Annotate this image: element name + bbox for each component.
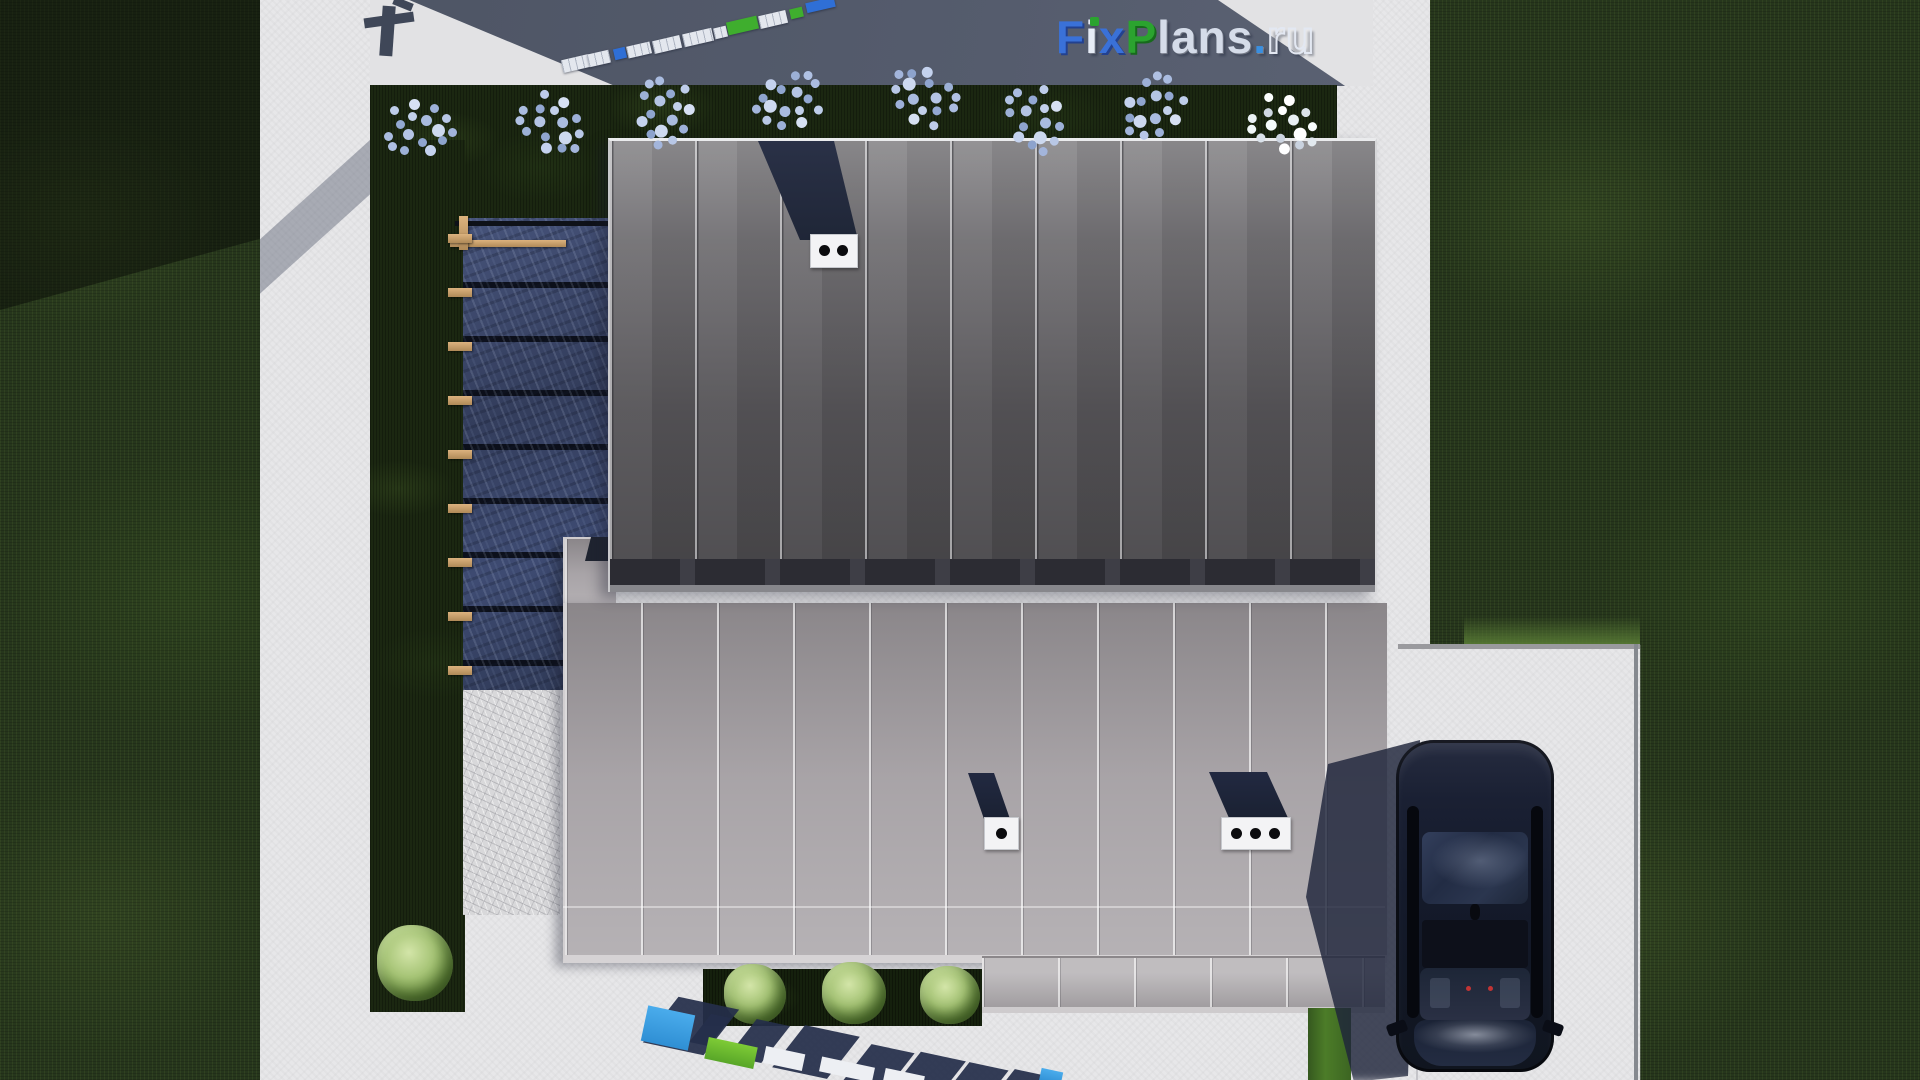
vent-hole — [996, 828, 1007, 839]
chimney-cap — [810, 234, 858, 268]
car-roof — [1422, 920, 1528, 968]
roof-vent-cap — [984, 817, 1019, 850]
garden-bush-left — [377, 925, 453, 1001]
pergola-rafter-tail — [448, 288, 472, 297]
watermark-letter-blue — [1039, 1068, 1063, 1080]
car-dash-light — [1488, 986, 1493, 991]
roof-lower-seam-line — [563, 906, 1385, 908]
vent-hole — [1269, 828, 1280, 839]
front-bush — [822, 962, 886, 1024]
pergola-rafter-tail — [448, 342, 472, 351]
vent-hole — [1231, 828, 1242, 839]
pergola-rafter-tail — [448, 504, 472, 513]
front-bush — [920, 966, 980, 1024]
patio-edge-line-right — [1634, 644, 1638, 1080]
pergola-rafter-tail — [448, 558, 472, 567]
roof-upper — [608, 138, 1377, 592]
logo-letter: P — [1125, 10, 1157, 64]
logo-letter: . — [1253, 10, 1267, 64]
logo-letter: n — [1198, 10, 1227, 64]
patio-edge-line-top — [1398, 644, 1640, 649]
roof-upper-eave-gaps — [610, 559, 1375, 585]
car-seat-glint — [1430, 978, 1450, 1008]
chimney-flue — [837, 245, 848, 256]
aerial-house-render: FixPlans.ru — [0, 0, 1920, 1080]
logo-letter: s — [1227, 10, 1254, 64]
logo-letter: l — [1157, 10, 1171, 64]
car-window-channel — [1407, 806, 1419, 1018]
pergola-rafter-tail — [448, 396, 472, 405]
car-rear-window — [1422, 832, 1528, 904]
car-window-channel — [1531, 806, 1543, 1018]
flower-cluster — [408, 112, 417, 121]
garden-strip-left — [370, 140, 465, 1012]
pergola-rafter-tail — [448, 612, 472, 621]
roof-vent-cap — [1221, 817, 1291, 850]
logo-i-dot-green — [1090, 17, 1099, 26]
car-hood — [1414, 1020, 1536, 1066]
pergola-top-beam — [455, 221, 615, 226]
strip-shadow-band — [260, 140, 370, 300]
car-antenna-fin — [1470, 904, 1480, 920]
roof-upper-eave-strip — [610, 585, 1375, 592]
logo-letter: x — [1099, 10, 1126, 64]
stone-terrace — [463, 690, 560, 915]
pergola-rafter-tail — [448, 666, 472, 675]
logo-letter: u — [1286, 10, 1315, 64]
pergola-wood-post — [459, 216, 468, 250]
logo-letter: a — [1171, 10, 1198, 64]
car-seat-glint — [1500, 978, 1520, 1008]
logo-letter: r — [1267, 10, 1286, 64]
logo-letter: F — [1056, 10, 1085, 64]
pergola-rafter-tail — [448, 234, 472, 243]
chimney-flue — [819, 245, 830, 256]
pergola-rafter-tail — [448, 450, 472, 459]
vent-hole — [1250, 828, 1261, 839]
car-dash-light — [1466, 986, 1471, 991]
car — [1396, 740, 1554, 1072]
